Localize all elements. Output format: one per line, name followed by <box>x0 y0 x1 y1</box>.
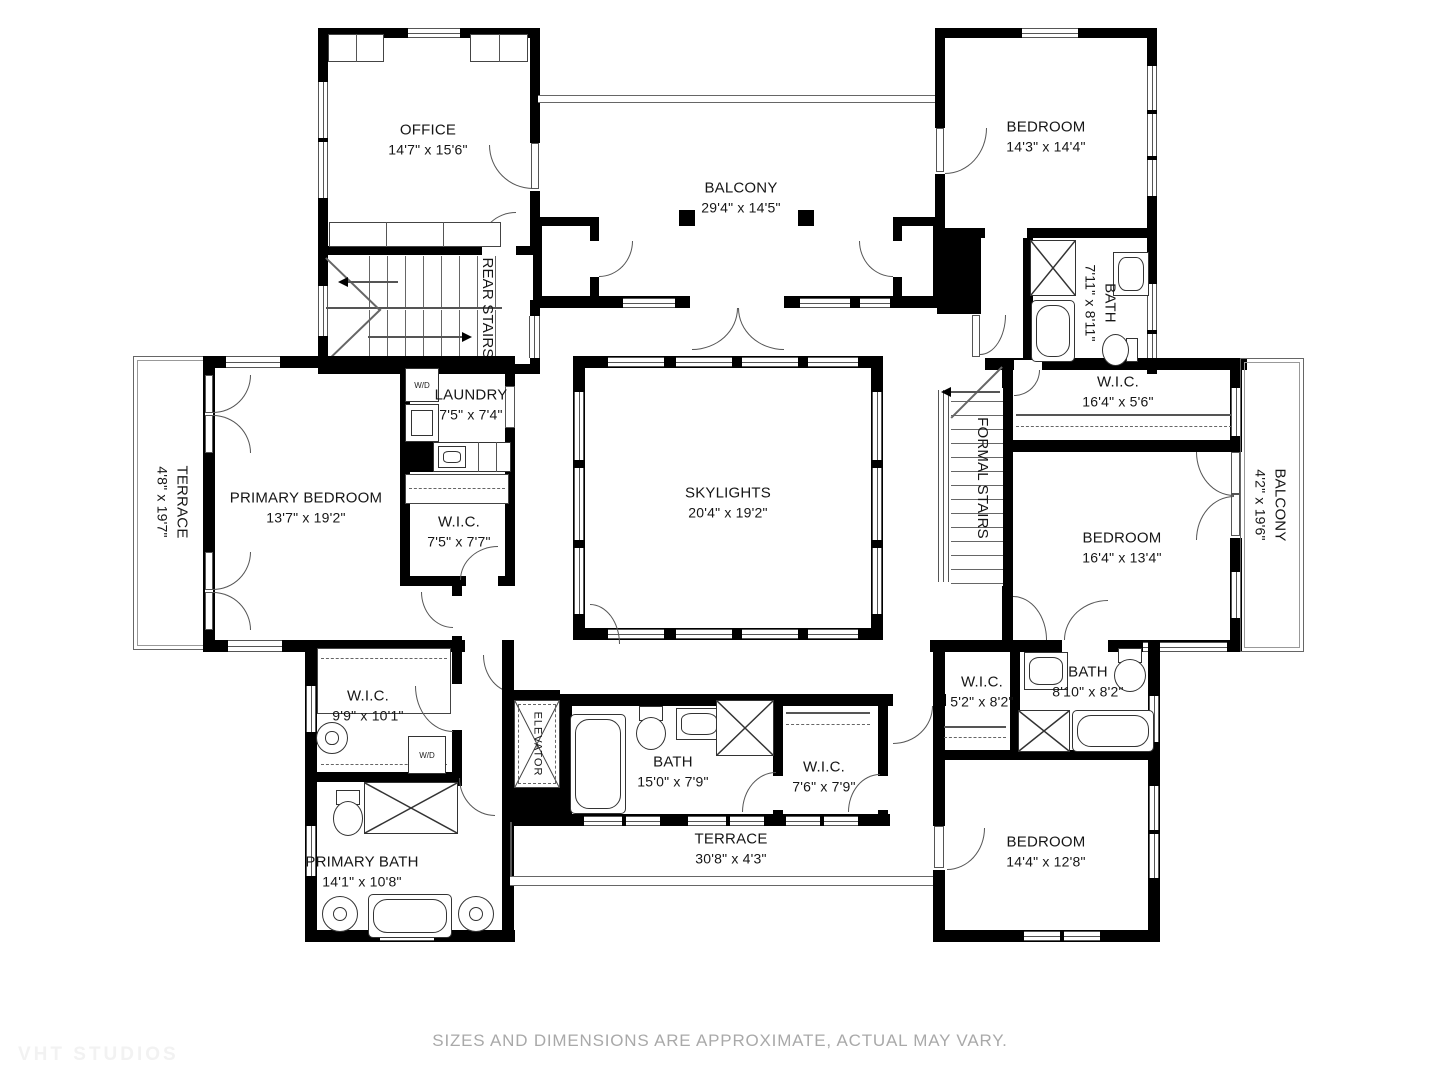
wall <box>878 810 888 826</box>
door-opening <box>452 684 462 730</box>
door-swing <box>738 308 784 350</box>
balcony-railing <box>538 95 936 103</box>
room-label-formal-stairs: FORMAL STAIRS <box>972 417 992 539</box>
room-label-skylights: SKYLIGHTS 20'4" x 19'2" <box>685 483 771 522</box>
door-swing <box>945 128 987 174</box>
window <box>808 357 858 367</box>
door-panel <box>936 128 944 172</box>
closet-rod <box>1016 426 1232 427</box>
window <box>676 357 732 367</box>
closet-rod <box>409 488 505 489</box>
counter-divider <box>478 442 479 472</box>
wall <box>935 228 1157 238</box>
window <box>742 629 798 639</box>
room-label-terrace-bottom: TERRACE 30'8" x 4'3" <box>694 829 767 868</box>
window <box>228 640 282 652</box>
window <box>318 142 328 198</box>
window <box>800 298 850 308</box>
watermark-logo: VHT STUDIOS <box>18 1044 179 1066</box>
window <box>676 629 732 639</box>
door-panel <box>972 315 980 357</box>
sink <box>322 896 358 932</box>
window <box>730 816 764 826</box>
room-label-office: OFFICE 14'7" x 15'6" <box>388 120 467 159</box>
door-swing <box>213 415 251 453</box>
window <box>742 357 798 367</box>
room-label-wic-75: W.I.C. 7'5" x 7'7" <box>427 512 490 551</box>
closet-divider <box>499 34 500 62</box>
door-opening <box>1062 640 1108 652</box>
wall <box>773 694 783 776</box>
door-swing <box>1013 596 1047 640</box>
room-label-laundry: LAUNDRY 7'5" x 7'4" <box>435 385 508 424</box>
window <box>1022 28 1078 38</box>
window <box>688 816 726 826</box>
door-swing <box>1014 370 1040 396</box>
door-opening <box>590 241 599 277</box>
door-swing <box>742 772 776 812</box>
room-label-wic-52: W.I.C. 5'2" x 8'2" <box>950 672 1013 711</box>
wall <box>878 694 888 776</box>
window <box>574 468 584 540</box>
door-swing <box>459 778 495 816</box>
wall <box>937 238 981 314</box>
floor-plan: OFFICE 14'7" x 15'6" REAR STAIRS BALCONY… <box>0 0 1440 1080</box>
stair-rail <box>326 307 502 309</box>
closet-rod <box>786 724 870 725</box>
closet-shelf <box>786 712 870 714</box>
door-swing <box>213 592 251 630</box>
wall <box>533 217 542 308</box>
wall <box>502 640 514 788</box>
door-opening <box>893 241 902 277</box>
room-label-wic-76: W.I.C. 7'6" x 7'9" <box>792 757 855 796</box>
room-label-terrace-left: TERRACE 4'8" x 19'7" <box>152 465 191 538</box>
closet-divider <box>356 34 357 62</box>
window <box>529 316 540 358</box>
door-panel <box>205 552 213 590</box>
door-panel <box>205 415 213 453</box>
washer-dryer: W/D <box>408 736 446 774</box>
window <box>408 28 460 38</box>
window <box>574 392 584 460</box>
column <box>679 210 695 226</box>
door-swing <box>213 375 251 413</box>
closet-divider <box>443 222 444 247</box>
window <box>318 286 328 336</box>
sink <box>316 722 348 754</box>
counter-divider <box>496 442 497 472</box>
window <box>1147 160 1157 196</box>
shower-x <box>1031 241 1075 295</box>
stair-arrow-line <box>368 336 464 338</box>
window <box>872 468 882 540</box>
shower-x <box>717 701 773 755</box>
room-label-balcony-right: BALCONY 4'2" x 19'6" <box>1250 468 1289 541</box>
room-label-bath-tr: BATH 7'11" x 8'11" <box>1080 264 1119 341</box>
door-swing <box>421 592 453 628</box>
door-swing <box>980 315 1006 355</box>
door-swing <box>415 686 453 732</box>
room-label-bath-810: BATH 8'10" x 8'2" <box>1052 662 1123 701</box>
wall <box>403 442 433 472</box>
bathtub <box>570 714 626 814</box>
toilet <box>636 706 664 748</box>
toilet <box>333 790 361 834</box>
door-opening <box>690 296 784 308</box>
door-swing <box>1196 452 1234 496</box>
window <box>1147 66 1157 110</box>
room-label-rear-stairs: REAR STAIRS <box>477 257 497 358</box>
stair-arrow <box>462 332 472 342</box>
window <box>808 629 858 639</box>
window <box>318 82 328 138</box>
closet-rod <box>944 737 1006 738</box>
door-panel <box>205 375 213 413</box>
room-label-wic-164: W.I.C. 16'4" x 5'6" <box>1082 372 1153 411</box>
shower-x <box>365 783 457 833</box>
window <box>623 298 675 308</box>
door-swing <box>859 241 893 277</box>
stair-arrow-line <box>950 391 1000 393</box>
window <box>786 816 820 826</box>
shower <box>716 700 774 756</box>
wall <box>1002 358 1013 652</box>
door-opening <box>893 694 935 706</box>
door-swing <box>590 604 620 644</box>
stair-rail-window <box>938 390 949 582</box>
window <box>872 392 882 460</box>
closet-divider <box>386 222 387 247</box>
closet-dresser <box>405 474 509 504</box>
terrace-railing <box>510 876 942 886</box>
wall <box>1002 440 1240 452</box>
door-swing <box>893 706 933 744</box>
terrace-edge <box>510 822 512 880</box>
closet-shelf <box>1016 414 1232 416</box>
sink <box>458 896 494 932</box>
door-panel <box>934 826 944 868</box>
column <box>798 210 814 226</box>
window <box>1064 931 1100 941</box>
room-label-bedroom-mr: BEDROOM 16'4" x 13'4" <box>1082 528 1161 567</box>
room-label-primary-bath: PRIMARY BATH 14'1" x 10'8" <box>305 852 418 891</box>
shower-x <box>1019 711 1069 751</box>
room-label-balcony-top: BALCONY 29'4" x 14'5" <box>701 178 780 217</box>
opening <box>985 228 1027 238</box>
window <box>626 816 660 826</box>
window <box>872 548 882 614</box>
window <box>306 686 316 732</box>
laundry-sink <box>438 446 466 468</box>
window <box>1147 114 1157 156</box>
window <box>860 298 890 308</box>
door-swing <box>1064 600 1108 640</box>
door-opening <box>482 246 516 255</box>
window <box>1149 834 1159 878</box>
room-label-bedroom-tr: BEDROOM 14'3" x 14'4" <box>1006 117 1085 156</box>
disclaimer-text: SIZES AND DIMENSIONS ARE APPROXIMATE, AC… <box>432 1031 1007 1051</box>
window <box>608 357 664 367</box>
door-opening <box>452 596 462 636</box>
shower <box>1030 240 1076 296</box>
closet-shelf <box>944 726 1006 728</box>
wall <box>514 690 560 700</box>
closet <box>329 222 501 247</box>
bathtub <box>368 894 452 938</box>
window <box>824 816 858 826</box>
door-swing <box>213 552 251 590</box>
closet-rod <box>321 658 447 659</box>
bathtub <box>1072 710 1154 752</box>
window <box>584 816 622 826</box>
room-label-elevator: ELEVATOR <box>530 712 545 777</box>
door-swing <box>1196 496 1234 540</box>
stair-arrow <box>338 277 348 287</box>
bathtub <box>1031 300 1075 362</box>
window <box>1149 786 1159 830</box>
door-panel <box>205 592 213 630</box>
room-label-bedroom-br: BEDROOM 14'4" x 12'8" <box>1006 832 1085 871</box>
room-label-wic-99: W.I.C. 9'9" x 10'1" <box>332 686 403 725</box>
stair-arrow <box>941 387 951 397</box>
wall <box>933 640 945 942</box>
door-swing <box>947 828 985 870</box>
stair-arrow-line <box>348 281 398 283</box>
wall <box>773 810 783 826</box>
shower <box>364 782 458 834</box>
shower <box>1018 710 1070 752</box>
door-swing <box>599 241 633 277</box>
window <box>574 548 584 614</box>
window <box>226 356 280 368</box>
room-label-bath-150: BATH 15'0" x 7'9" <box>637 752 708 791</box>
door-swing <box>489 145 533 189</box>
window <box>1024 931 1060 941</box>
door-swing <box>692 308 738 350</box>
room-label-primary-bedroom: PRIMARY BEDROOM 13'7" x 19'2" <box>230 488 382 527</box>
